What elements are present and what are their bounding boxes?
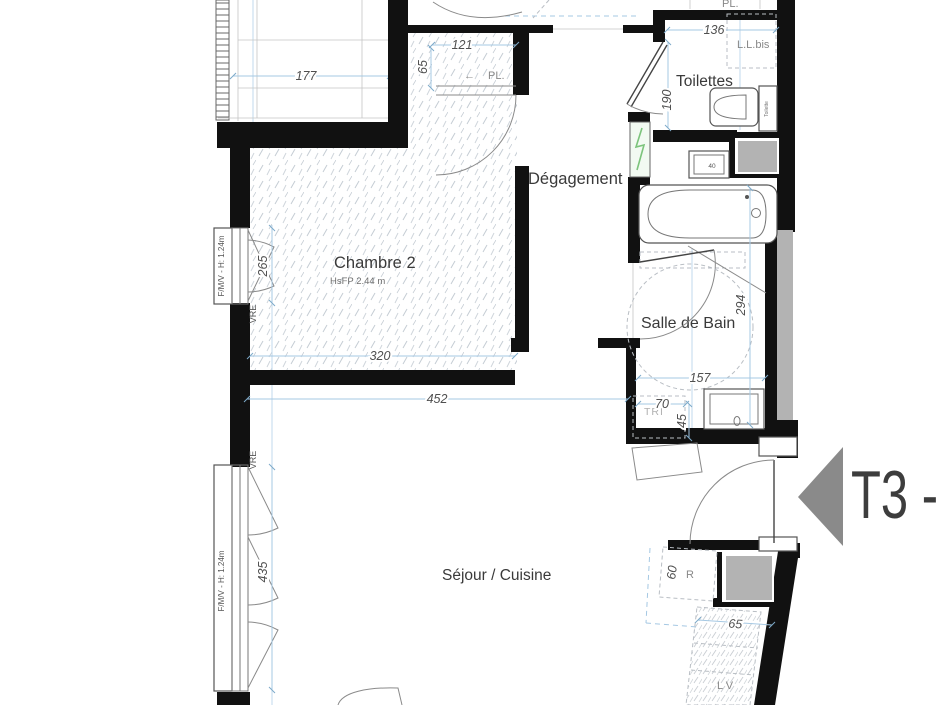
label-sejour-cuisine: Séjour / Cuisine [442,567,551,584]
entrance-door [690,437,797,551]
dim-452: 452 [427,392,448,406]
label-pl: PL. [488,70,505,82]
dim-294: 294 [734,295,748,317]
basin-width-label: 40 [708,163,716,170]
toilet-fixture: Toilette [710,86,777,131]
floor-plan-svg: 177 PL. [0,0,940,705]
hand-basin-fixture: 40 [689,151,729,178]
fridge-label: R [686,569,694,581]
label-salle-de-bain: Salle de Bain [641,315,735,332]
window-pocket [216,0,229,120]
dim-265: 265 [256,256,270,278]
vre-bottom-label: VRE [248,451,258,470]
window-top-label: F/M/V - H: 1.24m [217,235,226,296]
shaft2-gray [726,556,772,600]
dim-121: 121 [452,38,473,52]
dim-435: 435 [256,562,270,583]
vanity-fixture [704,389,764,429]
room-degagement: Dégagement [528,29,623,188]
dim-157: 157 [690,371,712,385]
dim-65-kitchen: 65 [728,617,743,632]
label-placard-top: PL. [722,0,739,10]
dishwasher-label: L V [717,680,734,692]
dim-177: 177 [296,69,318,83]
dim-70: 70 [655,397,669,411]
dim-190: 190 [660,90,674,111]
label-degagement: Dégagement [528,170,623,188]
room-sejour-cuisine: Séjour / Cuisine F/M/V - H: 1.24m VRE 43… [214,437,938,705]
dim-45: 45 [675,414,689,428]
pl-arrow-icon: ← [464,70,475,82]
dim-60: 60 [664,565,680,581]
window-bottom-label: F/M/V - H: 1.24m [217,550,226,611]
vre-top-label: VRE [248,305,258,324]
dim-65: 65 [416,60,430,74]
top-left-room: 177 [216,0,393,121]
label-chambre-2-height: HsFP 2.44 m [330,276,385,287]
room-toilettes: Toilettes L.L.bis Toilette 40 [627,14,779,178]
electrical-panel [630,122,650,177]
door-swing-bottom [338,688,402,705]
shaft-gray [738,141,777,172]
bathtub-fixture [639,185,777,243]
dim-136: 136 [704,23,725,37]
chambre2-hatched-floor [250,33,517,370]
floor-plan-canvas: 177 PL. [0,0,940,705]
dim-320: 320 [370,349,391,363]
mat-outline [632,443,702,480]
label-ll-bis: L.L.bis [737,39,770,51]
label-chambre-2: Chambre 2 [334,254,416,272]
entrance-arrow-icon [798,447,843,546]
toilet-tank-label: Toilette [764,101,770,117]
unit-type-label: T3 - [851,456,938,533]
